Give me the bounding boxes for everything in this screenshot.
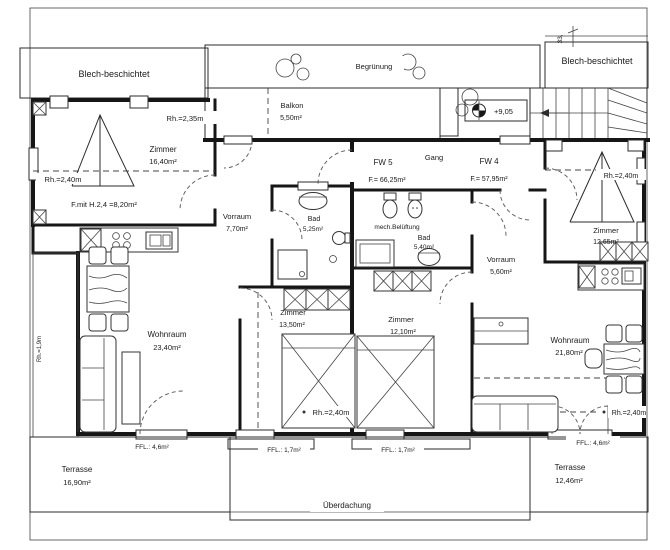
label-terrasse-right-area: 12,46m² <box>555 476 583 485</box>
label-balkon: Balkon <box>281 101 304 110</box>
label-rh-240-nw: Rh.=2,40m <box>45 175 82 184</box>
begruenung-area: Begrünung <box>205 45 540 136</box>
label-rh-240-s4: Rh.=2,40m <box>612 410 647 417</box>
label-zimmer-ne: Zimmer <box>593 226 619 235</box>
label-wohnraum5-area: 23,40m² <box>153 343 181 352</box>
label-vorraum5: Vorraum <box>223 212 251 221</box>
elevation-marker: +9,05 <box>465 100 527 121</box>
floor-plan-sheet: Blech-beschichtet Blech-beschichtet 33, … <box>0 0 670 550</box>
label-wohnraum5: Wohnraum <box>148 330 187 339</box>
label-fw5-area: F.= 66,25m² <box>368 177 406 184</box>
kitchen-fw4 <box>578 264 644 290</box>
balkon-area: Balkon 5,50m² <box>205 88 440 140</box>
label-ffl-left: FFL.: 4,6m² <box>135 444 169 451</box>
label-terrasse-right: Terrasse <box>555 463 586 472</box>
label-rh-240-ne: Rh.=2,40m <box>604 173 639 180</box>
label-rh-235: Rh.=2,35m <box>167 114 204 123</box>
label-zimmer-s5-area: 13,50m² <box>279 322 305 329</box>
dimension-33: 33, <box>557 26 578 47</box>
label-terrasse-left: Terrasse <box>62 465 93 474</box>
label-gang: Gang <box>425 153 443 162</box>
label-zimmer-s5: Zimmer <box>280 308 306 317</box>
label-dim-33: 33, <box>557 34 564 43</box>
label-bad5: Bad <box>308 216 321 223</box>
sideboard-fw4 <box>474 318 528 344</box>
canopy-left: Blech-beschichtet <box>20 48 208 98</box>
label-zimmer-ne-area: 12,65m² <box>593 239 619 246</box>
label-fw4: FW 4 <box>479 157 499 166</box>
floor-plan-svg: Blech-beschichtet Blech-beschichtet 33, … <box>0 0 670 550</box>
wc-fw4 <box>383 193 422 218</box>
label-ueberdachung: Überdachung <box>323 501 371 510</box>
label-canopy-right: Blech-beschichtet <box>561 56 633 66</box>
sofa-fw4 <box>472 396 558 432</box>
label-zimmer-s4: Zimmer <box>388 315 414 324</box>
label-bad4-area: 5,40m² <box>414 244 435 251</box>
label-begruenung: Begrünung <box>356 62 393 71</box>
sofa-fw5 <box>80 336 116 432</box>
label-vorraum4: Vorraum <box>487 255 515 264</box>
label-canopy-left: Blech-beschichtet <box>78 69 150 79</box>
label-bad4: Bad <box>418 235 431 242</box>
label-rh-240-s5: Rh.=2,40m <box>313 408 350 417</box>
label-ffl-right: FFL.: 4,6m² <box>576 440 610 447</box>
label-zimmer-s4-area: 12,10m² <box>390 329 416 336</box>
label-fw4-area: F.= 57,95m² <box>470 176 508 183</box>
label-terrasse-left-area: 16,90m² <box>63 478 91 487</box>
stair-direction-arrow <box>540 109 549 117</box>
label-vorraum4-area: 5,60m² <box>490 269 512 276</box>
label-ffl-mid1: FFL.: 1,7m² <box>267 447 301 454</box>
tv-board-fw5 <box>122 352 140 424</box>
label-f-mit: F.mit H.2,4 =8,20m² <box>71 200 137 209</box>
label-zimmer-nw-area: 16,40m² <box>149 157 177 166</box>
bed-s4 <box>357 336 434 428</box>
bathroom-fw5 <box>278 193 350 280</box>
label-rh-19-left: Rh.=1,9m <box>37 336 43 362</box>
dining-set-fw4 <box>585 325 644 393</box>
label-balkon-area: 5,50m² <box>280 115 302 122</box>
label-fw5: FW 5 <box>373 158 393 167</box>
dining-set-fw5 <box>87 247 129 331</box>
label-mech-belueftung: mech.Belüftung <box>374 224 420 231</box>
wardrobe-fw4 <box>374 271 431 291</box>
label-wohnraum4-area: 21,80m² <box>555 348 583 357</box>
roof-triangle-ne <box>570 152 634 222</box>
staircase <box>530 88 647 140</box>
label-wohnraum4: Wohnraum <box>551 336 590 345</box>
label-ffl-mid2: FFL.: 1,7m² <box>381 447 415 454</box>
wardrobe-fw5 <box>284 289 350 310</box>
label-vorraum5-area: 7,70m² <box>226 226 248 233</box>
label-elevation: +9,05 <box>494 107 513 116</box>
label-bad5-area: 5,25m² <box>303 226 324 233</box>
label-zimmer-nw: Zimmer <box>149 145 176 154</box>
